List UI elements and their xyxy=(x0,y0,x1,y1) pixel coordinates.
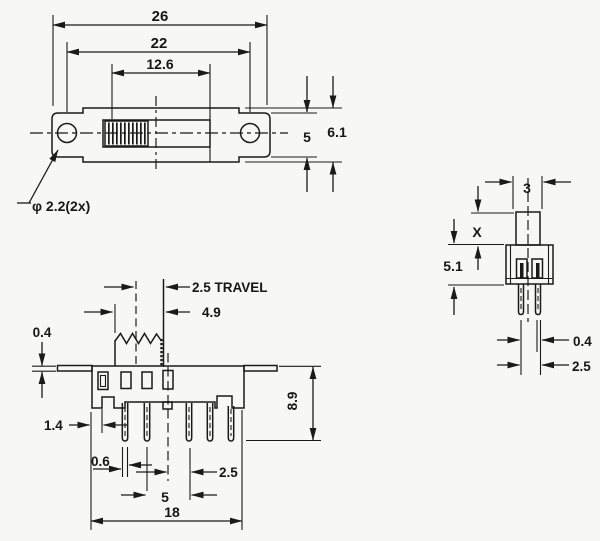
dim-text-4-9: 4.9 xyxy=(202,305,221,320)
drawing-canvas: 26 22 12.6 5 6.1 xyxy=(0,0,600,541)
dim-text-2-5-front: 2.5 xyxy=(219,465,238,480)
dim-text-2-5-side: 2.5 xyxy=(572,359,591,374)
dim-bracket-width-5: 5 xyxy=(271,76,317,192)
dim-text-5-front: 5 xyxy=(161,489,169,505)
hole-callout-text: φ 2.2(2x) xyxy=(32,198,90,214)
dim-text-travel: 2.5 TRAVEL xyxy=(192,280,268,295)
dim-text-5-1: 5.1 xyxy=(443,258,463,274)
dim-edge-to-notch-1-4: 1.4 xyxy=(44,409,127,433)
dim-knob-depth-3: 3 xyxy=(485,176,571,209)
side-view: 3 X 5.1 0.4 2.5 xyxy=(443,176,592,375)
slider-knob-front xyxy=(115,334,162,367)
dim-overall-height-8-9: 8.9 xyxy=(246,366,321,440)
contact-windows xyxy=(98,371,173,390)
dim-text-22: 22 xyxy=(151,35,168,52)
dim-text-18: 18 xyxy=(164,504,180,520)
dim-text-3: 3 xyxy=(523,180,531,196)
dim-travel-2-5: 2.5 TRAVEL xyxy=(104,280,268,295)
dim-text-0-4-side: 0.4 xyxy=(573,334,592,349)
top-view-part-outline xyxy=(30,96,288,170)
dim-slot-length-12-6: 12.6 xyxy=(112,56,210,120)
dim-text-26: 26 xyxy=(152,8,169,25)
break-line-zigzag xyxy=(115,334,162,344)
terminal-pins-side xyxy=(519,285,541,315)
flange-left xyxy=(58,366,93,372)
flange-right xyxy=(244,366,277,372)
top-view: 26 22 12.6 5 6.1 xyxy=(17,8,347,214)
dim-pin-pitch-2-5: 2.5 xyxy=(497,359,591,374)
dim-text-5-top: 5 xyxy=(303,129,311,145)
dim-text-1-4: 1.4 xyxy=(44,418,63,433)
front-view: 2.5 TRAVEL 4.9 0.4 1.4 0.6 xyxy=(32,279,321,530)
dim-knob-width-4-9: 4.9 xyxy=(84,304,221,333)
dim-text-6-1: 6.1 xyxy=(327,124,347,140)
dim-pin-span-5: 5 xyxy=(121,447,217,505)
dim-text-12-6: 12.6 xyxy=(146,56,173,72)
dim-text-8-9: 8.9 xyxy=(285,392,300,411)
dim-body-width-6-1: 6.1 xyxy=(245,76,347,192)
switch-dimension-drawing: 26 22 12.6 5 6.1 xyxy=(0,0,600,541)
dim-text-0-6: 0.6 xyxy=(91,454,110,469)
front-view-part-outline xyxy=(58,279,278,481)
contacts-side xyxy=(517,259,543,278)
dim-text-x: X xyxy=(472,224,482,240)
dim-flange-thickness-0-4: 0.4 xyxy=(32,325,56,398)
dim-center-to-pin-2-5: 2.5 xyxy=(136,448,238,500)
dim-text-0-4-front: 0.4 xyxy=(33,325,52,340)
hole-callout: φ 2.2(2x) xyxy=(17,150,90,214)
